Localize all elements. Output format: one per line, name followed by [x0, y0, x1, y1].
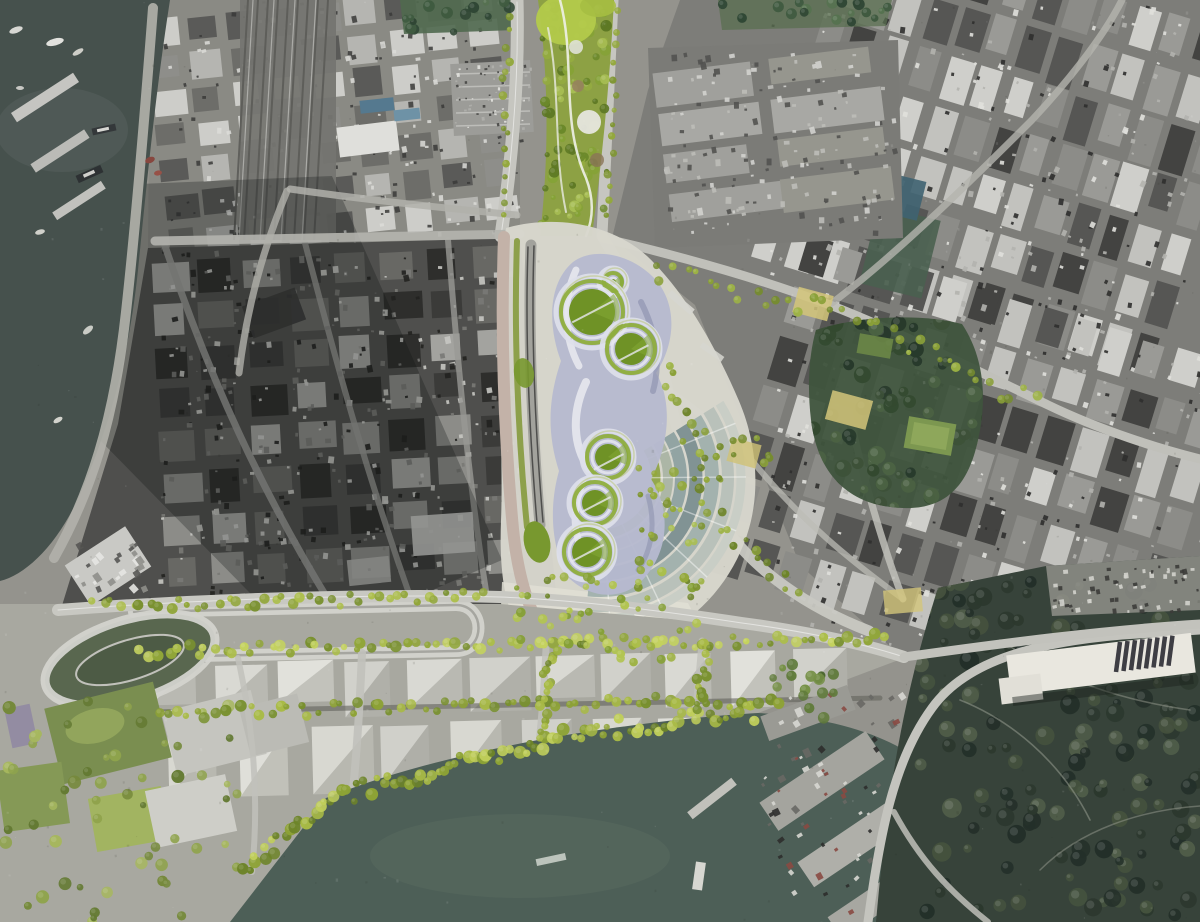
park-clearing-brown-2: [590, 153, 604, 167]
park-plaza-2: [569, 40, 583, 54]
park-plaza: [577, 110, 601, 134]
sky-garden-2: [602, 320, 660, 378]
water-sheen-south: [370, 814, 670, 898]
masterplan-rendering: [0, 0, 1200, 922]
park-clearing-brown: [572, 80, 584, 92]
aerial-masterplan-image: [0, 0, 1200, 922]
boat-4: [16, 86, 24, 90]
junction-ochre-4: [883, 587, 923, 614]
